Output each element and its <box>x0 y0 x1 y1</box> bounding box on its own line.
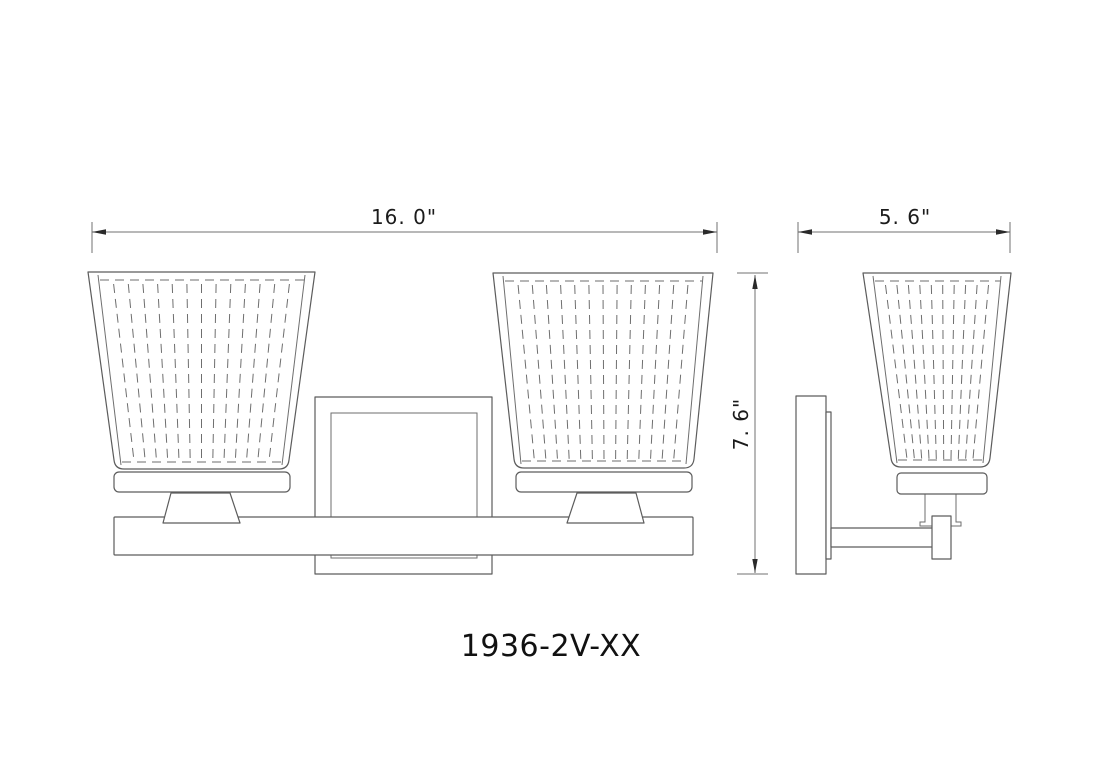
spec-sheet: 16. 0" 7. 6" <box>0 0 1096 775</box>
fixture-drawing: 16. 0" 7. 6" <box>0 0 1096 775</box>
front-view: 16. 0" 7. 6" <box>88 205 768 574</box>
front-shade-left <box>88 272 315 469</box>
dimension-side-depth: 5. 6" <box>798 205 1010 253</box>
model-number: 1936-2V-XX <box>461 629 641 664</box>
side-bar-section <box>932 516 951 559</box>
side-view: 5. 6" <box>796 205 1011 574</box>
fixture-height-label: 7. 6" <box>729 398 753 450</box>
arrowhead-up-icon <box>752 275 757 289</box>
side-wall-plate-lip <box>826 412 831 559</box>
arrowhead-left-icon <box>798 229 812 234</box>
dimension-fixture-height: 7. 6" <box>729 273 768 574</box>
front-shade-right <box>493 273 713 468</box>
arrowhead-down-icon <box>752 559 757 573</box>
front-collar-left <box>114 472 290 492</box>
front-stem-right <box>567 493 644 523</box>
side-wall-plate <box>796 396 826 574</box>
side-arm <box>831 528 943 547</box>
arrowhead-right-icon <box>996 229 1010 234</box>
dimension-front-width: 16. 0" <box>92 205 717 253</box>
arrowhead-left-icon <box>92 229 106 234</box>
arrowhead-right-icon <box>703 229 717 234</box>
side-shade <box>863 273 1011 467</box>
front-collar-right <box>516 472 692 492</box>
front-width-label: 16. 0" <box>371 205 437 229</box>
front-stem-left <box>163 493 240 523</box>
side-collar <box>897 473 987 494</box>
side-depth-label: 5. 6" <box>879 205 931 229</box>
